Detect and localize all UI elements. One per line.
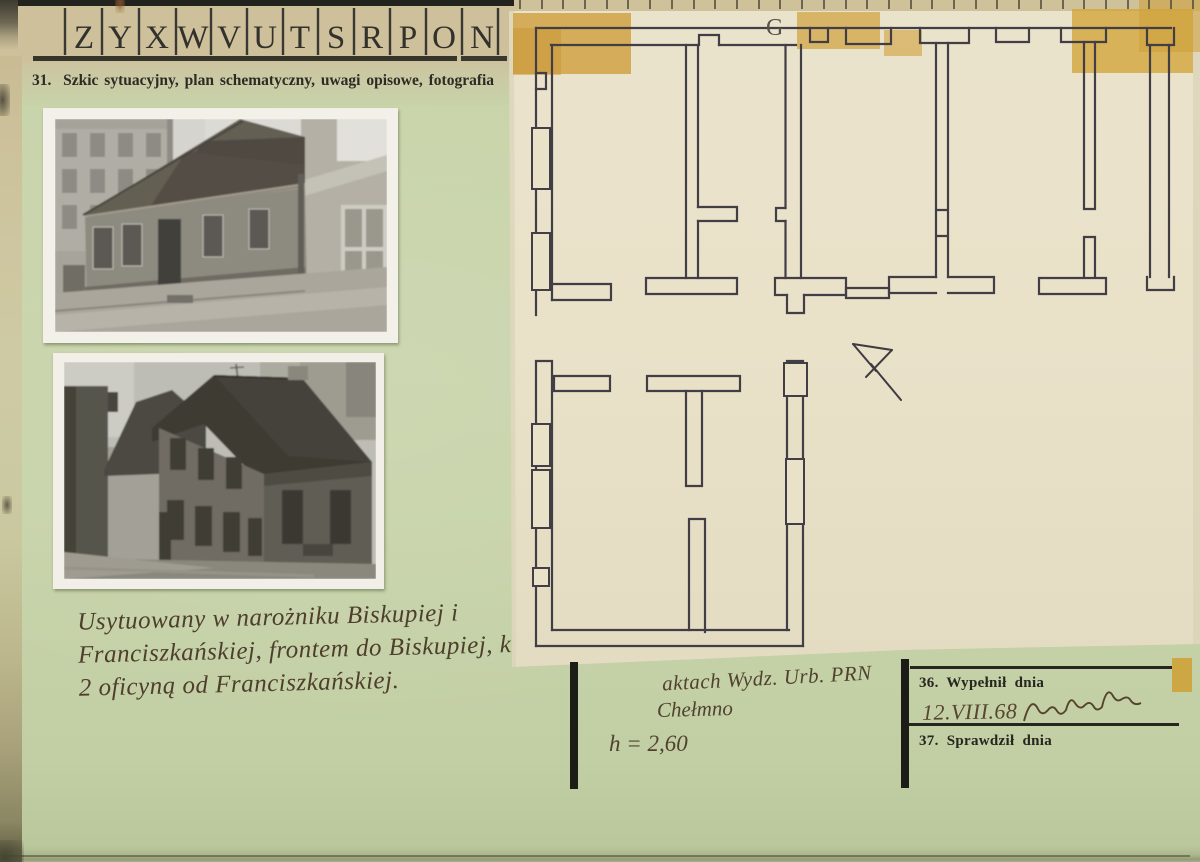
svg-text:G: G (766, 15, 783, 41)
